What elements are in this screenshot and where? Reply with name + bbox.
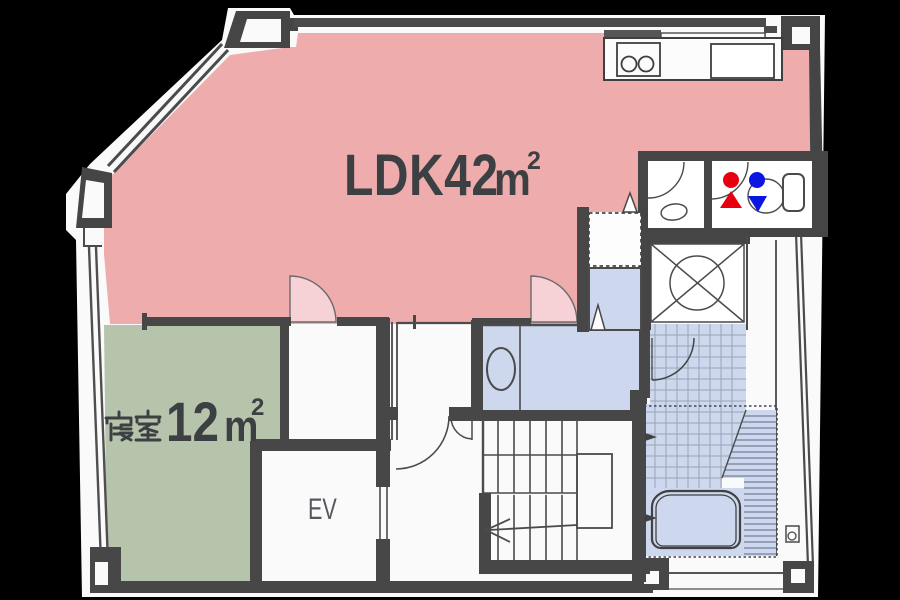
svg-text:12: 12: [166, 391, 219, 453]
svg-text:LDK42: LDK42: [344, 144, 499, 208]
svg-text:EV: EV: [308, 491, 337, 525]
svg-text:2: 2: [251, 394, 264, 421]
svg-text:2: 2: [527, 147, 541, 175]
svg-text:m: m: [494, 154, 531, 206]
